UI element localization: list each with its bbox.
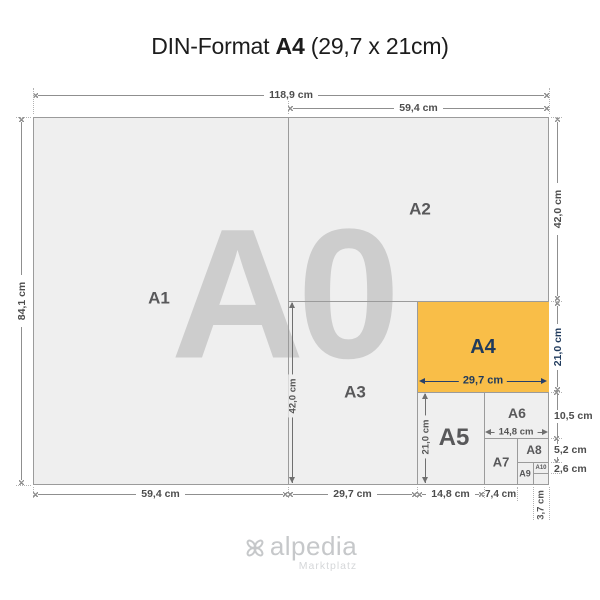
leader-line <box>551 438 562 439</box>
alpedia-logo: alpedia Marktplatz <box>0 533 600 572</box>
dim-a0-height: 84,1 cm <box>15 117 28 485</box>
dim-a2-width-label: 59,4 cm <box>399 103 438 114</box>
leader-line <box>288 101 289 114</box>
dim-a5-width: 14,8 cm <box>417 488 484 501</box>
dim-a3-width-label: 29,7 cm <box>333 489 372 500</box>
dim-a7-width-label: 7,4 cm <box>485 490 516 500</box>
arrow-up-icon <box>422 393 428 399</box>
label-a3: A3 <box>344 384 366 401</box>
arrow-down-icon <box>422 477 428 483</box>
leader-line <box>533 487 534 520</box>
dim-a2-width: 59,4 cm <box>288 102 549 115</box>
label-a5: A5 <box>439 426 470 450</box>
dim-a6-height-label: 10,5 cm <box>552 410 595 423</box>
dim-a8-height-label: 5,2 cm <box>552 444 589 457</box>
dim-a4-height: 21,0 cm <box>551 301 564 392</box>
leader-line <box>33 487 34 498</box>
a0-watermark: A0 <box>171 203 394 388</box>
dim-inner-a4-width-label: 29,7 cm <box>459 376 507 387</box>
title-format: A4 <box>276 33 305 59</box>
dim-a1-width-label: 59,4 cm <box>141 489 180 500</box>
page-title: DIN-Format A4 (29,7 x 21cm) <box>0 33 600 60</box>
divider-a3 <box>417 301 418 485</box>
dim-a7-width: 7,4 cm <box>484 488 517 501</box>
dim-total-width: 118,9 cm <box>33 89 549 102</box>
label-a7: A7 <box>493 456 510 469</box>
leader-line <box>551 462 562 463</box>
label-a2: A2 <box>409 201 431 218</box>
title-size: (29,7 x 21cm) <box>311 33 449 59</box>
leader-line <box>16 485 31 486</box>
arrow-down-icon <box>289 477 295 483</box>
logo-name: alpedia <box>270 533 357 559</box>
arrow-up-icon <box>289 302 295 308</box>
dim-a0-height-label: 84,1 cm <box>16 282 27 321</box>
logo-tagline: Marktplatz <box>299 560 357 572</box>
leader-line <box>33 88 34 114</box>
leader-line <box>549 487 550 520</box>
leader-line <box>16 117 31 118</box>
label-a8: A8 <box>526 444 541 456</box>
dim-inner-a5-height-label: 21,0 cm <box>421 416 431 459</box>
dim-a3-width: 29,7 cm <box>288 488 417 501</box>
divider-a2 <box>288 301 549 302</box>
label-a9: A9 <box>519 470 531 479</box>
dim-a5-width-label: 14,8 cm <box>431 489 470 500</box>
leader-line <box>551 301 562 302</box>
leader-line <box>517 487 518 501</box>
dim-total-width-label: 118,9 cm <box>269 90 313 101</box>
leader-line <box>549 88 550 114</box>
title-prefix: DIN-Format <box>151 33 269 59</box>
dim-inner-a3-height-label: 42,0 cm <box>288 375 298 418</box>
arrow-right-icon <box>541 378 547 384</box>
leader-line <box>484 487 485 498</box>
arrow-right-icon <box>542 429 548 435</box>
flower-icon <box>243 536 267 565</box>
label-a10: A10 <box>535 465 546 471</box>
dim-inner-a6-width-label: 14,8 cm <box>495 427 538 437</box>
label-a4: A4 <box>470 337 496 357</box>
din-format-diagram: DIN-Format A4 (29,7 x 21cm) A0 A1 A2 A3 … <box>0 0 600 600</box>
label-a6: A6 <box>508 406 526 420</box>
dim-a1-width: 59,4 cm <box>33 488 288 501</box>
dim-a2-height: 42,0 cm <box>551 117 564 301</box>
arrow-left-icon <box>485 429 491 435</box>
divider-a10 <box>533 473 549 474</box>
leader-line <box>288 487 289 498</box>
leader-line <box>551 473 562 474</box>
leader-line <box>551 392 562 393</box>
dim-a10-width-label: 3,7 cm <box>536 486 546 524</box>
leader-line <box>551 117 562 118</box>
leader-line <box>417 487 418 498</box>
dim-a2-height-label: 42,0 cm <box>552 190 563 229</box>
divider-a4 <box>417 392 549 393</box>
arrow-left-icon <box>419 378 425 384</box>
dim-a4-height-label: 21,0 cm <box>552 327 563 366</box>
label-a1: A1 <box>148 290 170 307</box>
